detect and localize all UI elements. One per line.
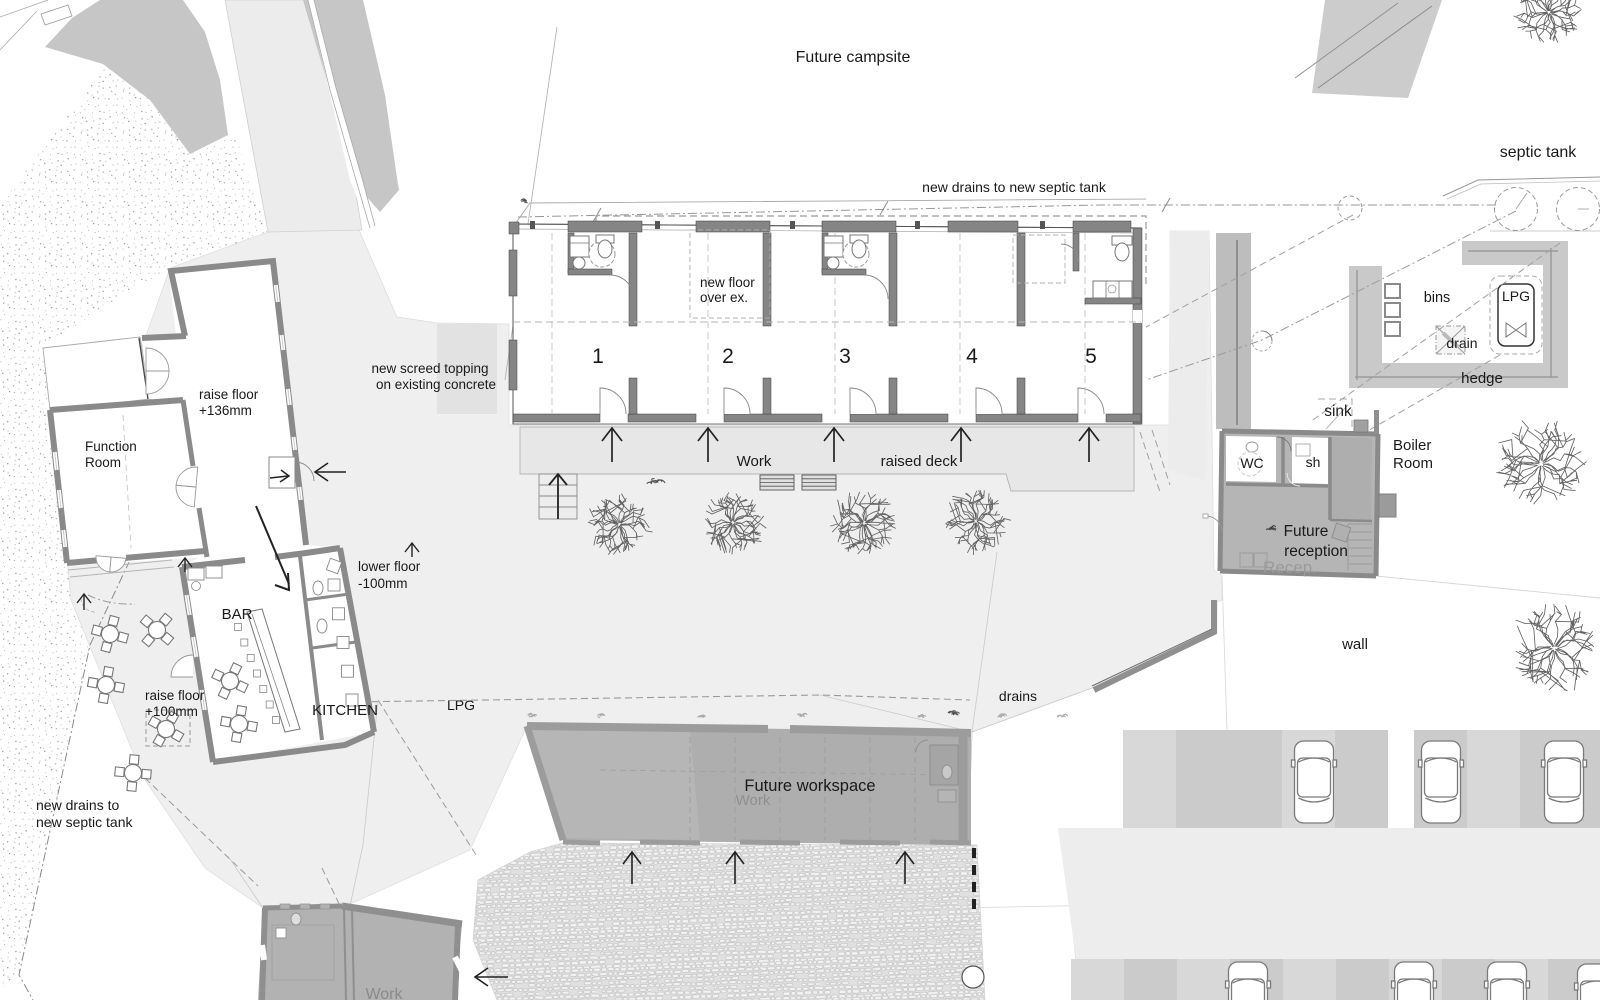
svg-text:Boiler: Boiler xyxy=(1393,437,1431,454)
svg-text:lower floor: lower floor xyxy=(358,559,421,574)
svg-text:Future campsite: Future campsite xyxy=(796,49,911,66)
svg-text:Work: Work xyxy=(736,792,771,809)
svg-text:+100mm: +100mm xyxy=(145,704,198,719)
svg-text:raised deck: raised deck xyxy=(881,453,958,470)
svg-text:1: 1 xyxy=(592,345,604,368)
svg-text:Work: Work xyxy=(737,453,772,470)
svg-text:sh: sh xyxy=(1306,454,1321,470)
svg-text:raise floor: raise floor xyxy=(199,387,259,402)
svg-text:bins: bins xyxy=(1424,290,1451,306)
svg-text:Room: Room xyxy=(1393,455,1433,472)
svg-text:Function: Function xyxy=(85,439,137,454)
svg-text:wall: wall xyxy=(1341,636,1368,653)
svg-text:over ex.: over ex. xyxy=(700,290,748,305)
svg-text:new screed topping: new screed topping xyxy=(371,361,488,376)
svg-text:drain: drain xyxy=(1446,335,1477,351)
svg-text:Recep.: Recep. xyxy=(1263,558,1317,577)
svg-text:3: 3 xyxy=(839,345,851,368)
svg-text:KITCHEN: KITCHEN xyxy=(312,702,378,719)
svg-text:+136mm: +136mm xyxy=(199,403,252,418)
svg-text:WC: WC xyxy=(1240,455,1263,471)
svg-text:new drains to: new drains to xyxy=(36,797,119,813)
svg-text:reception: reception xyxy=(1284,543,1348,560)
svg-text:drains: drains xyxy=(999,688,1037,704)
svg-text:2: 2 xyxy=(722,345,734,368)
svg-text:on existing concrete: on existing concrete xyxy=(376,377,496,392)
svg-text:hedge: hedge xyxy=(1461,370,1503,387)
svg-text:new drains to new septic tank: new drains to new septic tank xyxy=(922,179,1107,195)
svg-text:new septic tank: new septic tank xyxy=(36,814,133,830)
svg-text:5: 5 xyxy=(1085,345,1097,368)
svg-text:sink: sink xyxy=(1324,403,1352,420)
svg-text:4: 4 xyxy=(966,345,978,368)
svg-text:-100mm: -100mm xyxy=(358,576,408,591)
svg-text:LPG: LPG xyxy=(447,697,475,713)
svg-text:LPG: LPG xyxy=(1502,288,1530,304)
svg-text:septic tank: septic tank xyxy=(1500,144,1577,161)
svg-text:Room: Room xyxy=(85,455,121,470)
svg-text:raise floor: raise floor xyxy=(145,688,205,703)
svg-text:Future: Future xyxy=(1284,523,1329,540)
svg-text:new floor: new floor xyxy=(700,275,755,290)
svg-text:Work: Work xyxy=(365,986,403,1000)
svg-text:BAR: BAR xyxy=(222,606,253,623)
